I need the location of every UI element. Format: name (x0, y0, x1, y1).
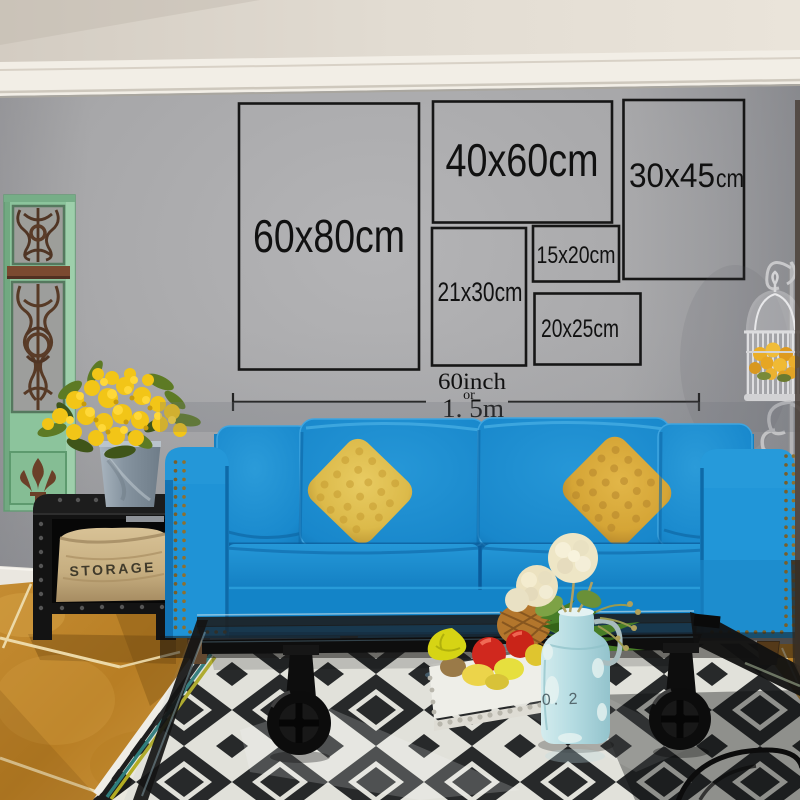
svg-text:60x80cm: 60x80cm (253, 210, 405, 262)
svg-text:21x30cm: 21x30cm (438, 277, 523, 307)
svg-text:20x25cm: 20x25cm (541, 315, 619, 343)
svg-text:40x60cm: 40x60cm (446, 134, 599, 186)
svg-text:cm: cm (716, 163, 744, 193)
svg-text:30x45: 30x45 (629, 157, 715, 195)
svg-text:15x20cm: 15x20cm (537, 242, 616, 269)
svg-text:0. 2: 0. 2 (542, 691, 581, 709)
